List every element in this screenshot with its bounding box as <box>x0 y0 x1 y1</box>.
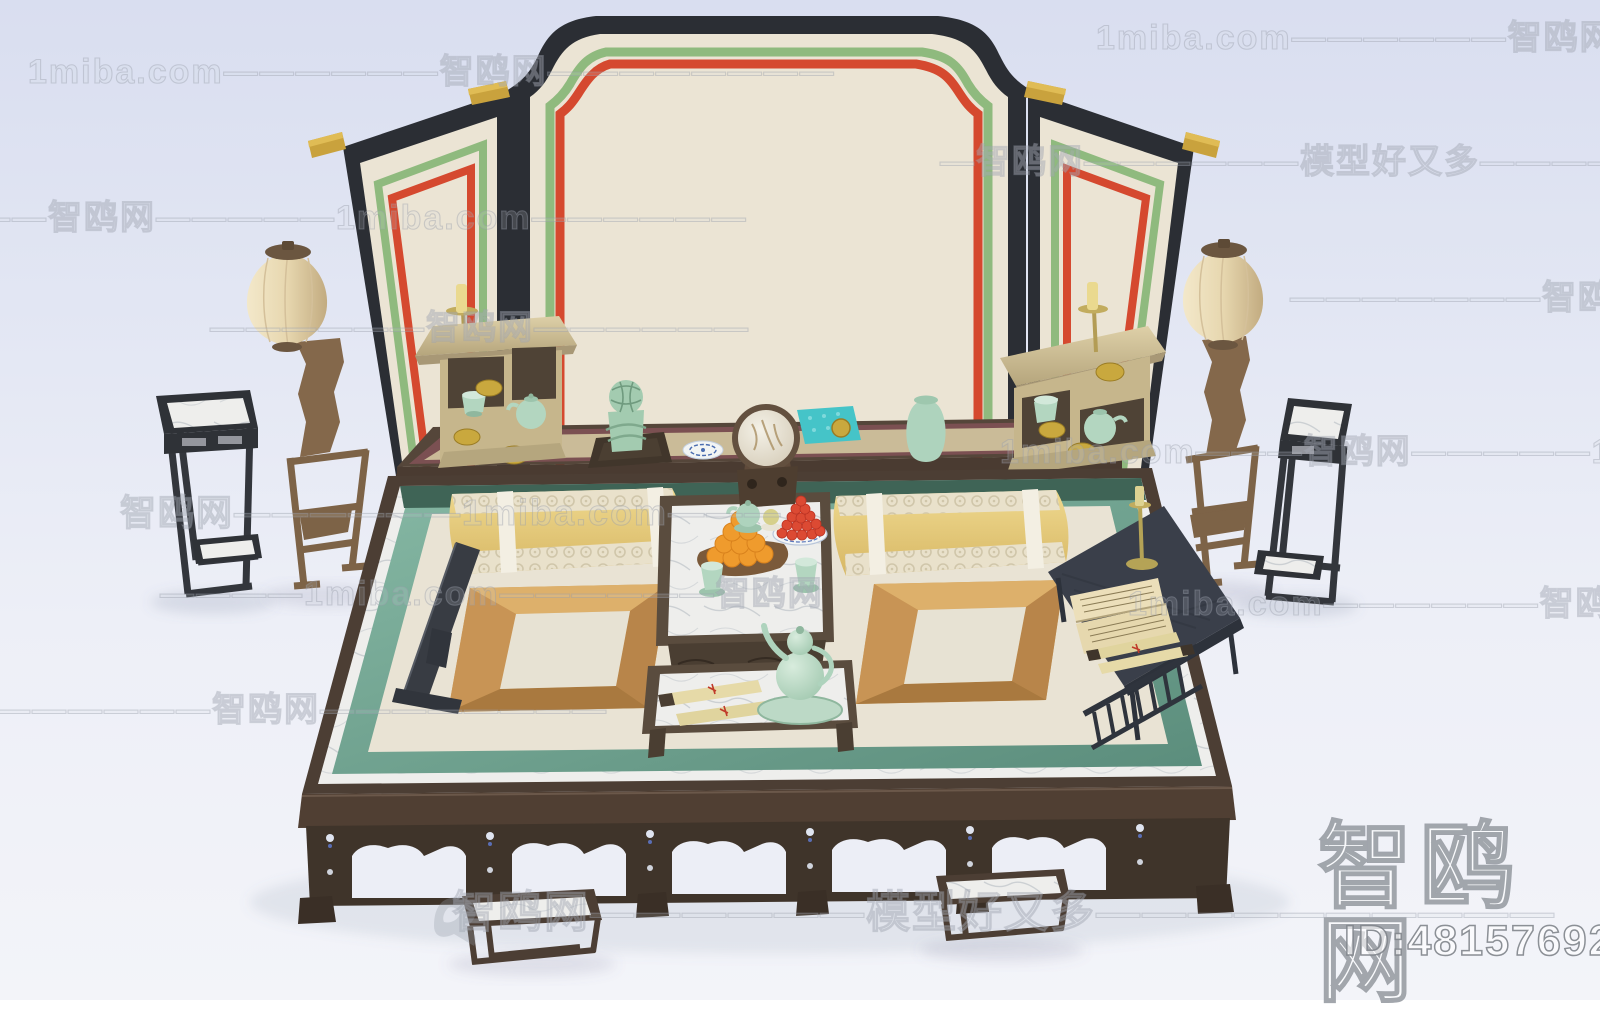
left-bolster <box>449 487 683 574</box>
left-cushion <box>448 584 668 712</box>
right-incense-stand <box>1254 398 1352 602</box>
stand-marble-top <box>167 398 250 428</box>
blue-white-plate <box>683 441 723 459</box>
right-cushion <box>856 580 1064 704</box>
left-incense-stand <box>156 390 262 594</box>
left-lantern <box>247 241 368 586</box>
right-lantern <box>1183 239 1263 584</box>
lantern-support-carving <box>1202 336 1250 455</box>
stand-marble-top <box>1288 406 1344 439</box>
scene-3d-render <box>0 0 1600 1000</box>
teal-mat <box>797 406 861 444</box>
right-bolster <box>834 489 1069 576</box>
celadon-cup <box>1034 396 1058 424</box>
lantern-support-carving <box>296 338 344 457</box>
product-image-stage: 智鸥网 ID:481576925 1miba.com——————智鸥网—————… <box>0 0 1600 1000</box>
